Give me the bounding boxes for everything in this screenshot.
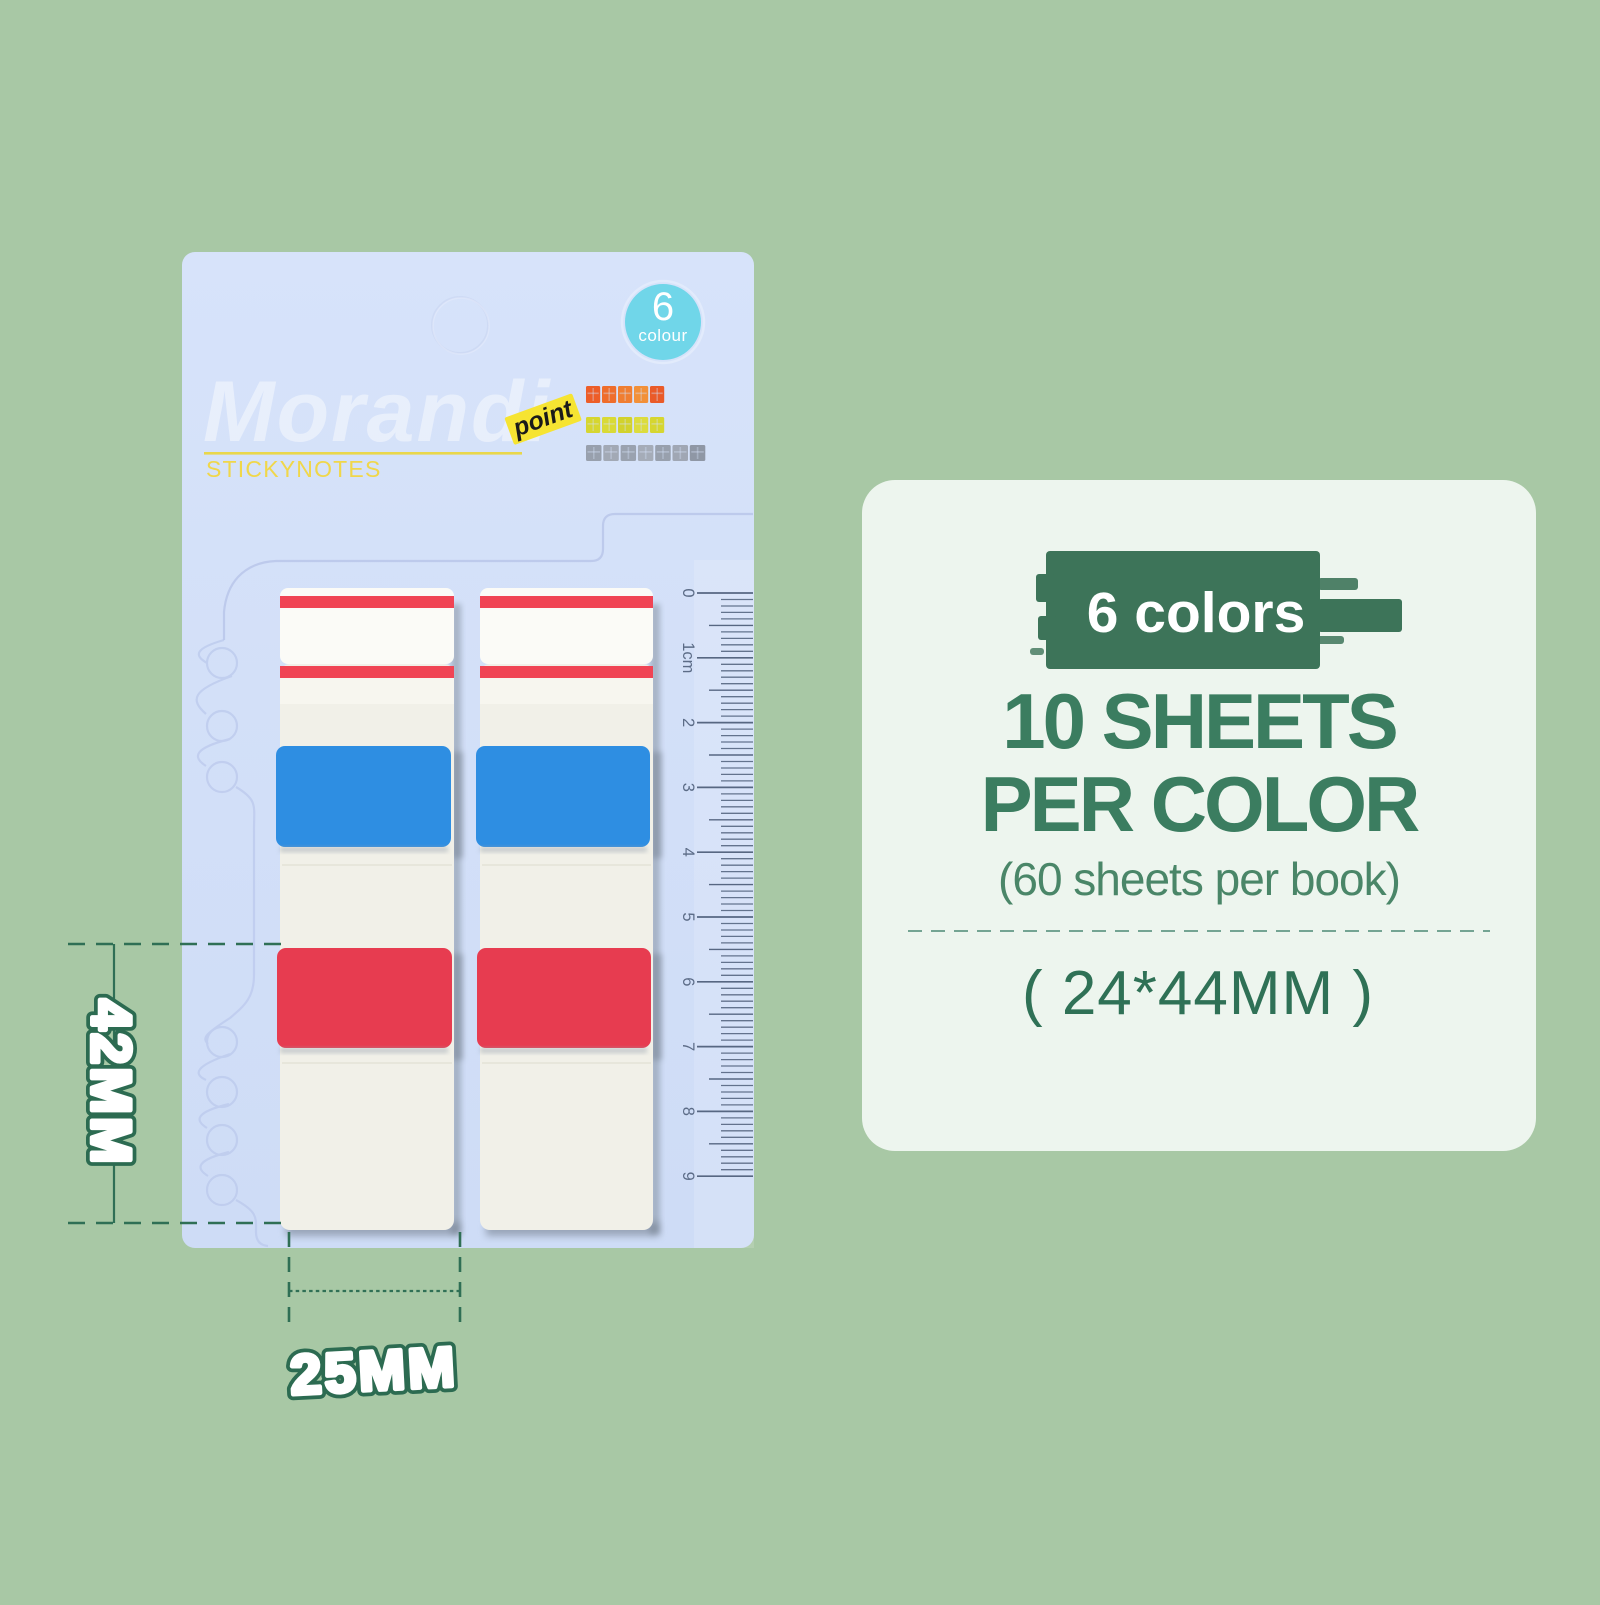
svg-text:6 colors: 6 colors bbox=[1087, 581, 1306, 645]
svg-text:9: 9 bbox=[679, 1172, 697, 1181]
svg-text:4: 4 bbox=[679, 848, 697, 857]
svg-text:( 24*44MM ): ( 24*44MM ) bbox=[1022, 959, 1374, 1028]
svg-text:(60 sheets per book): (60 sheets per book) bbox=[998, 853, 1400, 905]
svg-text:3: 3 bbox=[679, 783, 697, 792]
svg-text:25MM: 25MM bbox=[289, 1335, 460, 1407]
svg-text:STICKYNOTES: STICKYNOTES bbox=[206, 456, 382, 482]
svg-text:colour: colour bbox=[638, 326, 687, 345]
svg-text:PER COLOR: PER COLOR bbox=[981, 760, 1419, 848]
svg-text:42MM: 42MM bbox=[80, 999, 143, 1167]
svg-text:1cm: 1cm bbox=[679, 642, 697, 673]
svg-text:0: 0 bbox=[679, 588, 697, 597]
svg-text:5: 5 bbox=[679, 912, 697, 921]
svg-text:7: 7 bbox=[679, 1042, 697, 1051]
svg-text:2: 2 bbox=[679, 718, 697, 727]
svg-text:Morandi: Morandi bbox=[203, 364, 552, 460]
svg-text:8: 8 bbox=[679, 1107, 697, 1116]
svg-text:10 SHEETS: 10 SHEETS bbox=[1002, 677, 1396, 765]
svg-text:6: 6 bbox=[679, 977, 697, 986]
svg-text:6: 6 bbox=[652, 285, 674, 329]
